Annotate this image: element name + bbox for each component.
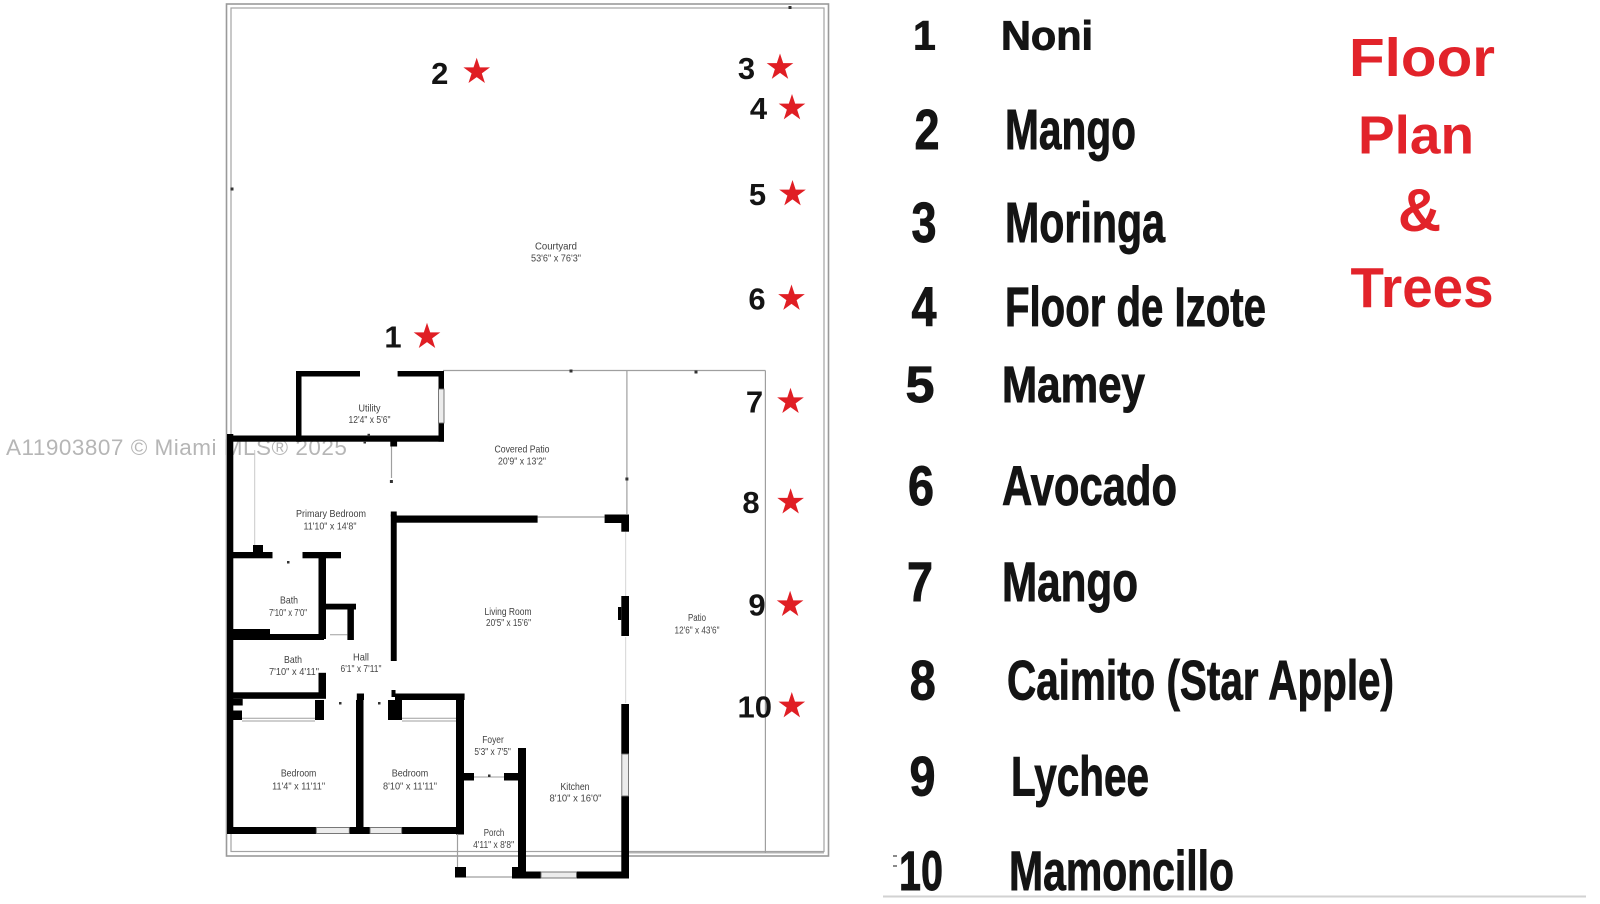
svg-text:&: & [1398,177,1441,244]
svg-text:11'10" x 14'8": 11'10" x 14'8" [304,522,357,533]
svg-text:Living Room: Living Room [485,606,532,618]
svg-text:1: 1 [913,13,936,59]
svg-text:8'10" x 11'11": 8'10" x 11'11" [383,782,437,793]
svg-text:Floor: Floor [1349,28,1495,88]
svg-text:6'1" x 7'11": 6'1" x 7'11" [341,664,382,675]
svg-text:Caimito (Star Apple): Caimito (Star Apple) [1007,649,1394,712]
svg-text:4'11" x 8'8": 4'11" x 8'8" [473,840,514,851]
svg-text:3: 3 [912,191,937,255]
svg-text:11'4" x 11'11": 11'4" x 11'11" [272,782,325,793]
svg-text:Mamoncillo: Mamoncillo [1009,839,1234,899]
svg-text:6: 6 [908,455,934,517]
svg-text:10: 10 [737,690,771,725]
svg-text:5: 5 [906,356,935,413]
svg-text:53'6" x 76'3": 53'6" x 76'3" [531,254,581,265]
svg-text:20'9" x 13'2": 20'9" x 13'2" [498,457,546,468]
svg-text:7'10" x 7'0": 7'10" x 7'0" [269,608,307,619]
svg-text:4: 4 [912,276,937,338]
svg-text:7'10" x 4'11": 7'10" x 4'11" [269,667,319,678]
svg-text:Bedroom: Bedroom [392,768,429,780]
svg-text:Utility: Utility [359,403,382,415]
svg-text:Courtyard: Courtyard [535,241,577,253]
svg-text:3: 3 [738,51,755,86]
svg-text:5: 5 [749,177,766,212]
svg-text:Foyer: Foyer [482,734,504,746]
svg-text:Moringa: Moringa [1005,191,1166,255]
svg-text:Lychee: Lychee [1011,745,1149,808]
svg-text:6: 6 [748,281,765,316]
svg-text:Noni: Noni [1001,13,1093,59]
svg-text:20'5" x 15'6": 20'5" x 15'6" [486,618,531,629]
svg-text:8'10" x 16'0": 8'10" x 16'0" [550,794,603,805]
svg-text:Primary Bedroom: Primary Bedroom [296,508,366,520]
svg-text:Hall: Hall [353,652,369,664]
svg-text:12'6" x 43'6": 12'6" x 43'6" [675,626,720,637]
svg-text:7: 7 [746,384,763,419]
svg-text:5'3" x 7'5": 5'3" x 7'5" [474,747,511,758]
svg-text:Mamey: Mamey [1002,356,1145,413]
svg-text:7: 7 [907,551,933,613]
svg-text:Floor de Izote: Floor de Izote [1005,276,1266,338]
svg-text:Patio: Patio [688,612,706,624]
svg-text:9: 9 [748,588,765,623]
svg-text:4: 4 [750,91,768,126]
svg-text:Mango: Mango [1002,551,1138,613]
svg-text:Kitchen: Kitchen [561,781,590,793]
svg-text:12'4" x 5'6": 12'4" x 5'6" [349,415,391,426]
svg-text:8: 8 [910,649,936,712]
svg-text:Bedroom: Bedroom [281,768,317,780]
svg-text:2: 2 [915,98,940,162]
svg-text:1: 1 [384,320,401,355]
svg-text:Bath: Bath [284,654,302,666]
svg-text:10: 10 [899,839,943,899]
svg-text:Covered Patio: Covered Patio [495,444,550,456]
svg-text:Bath: Bath [280,595,298,607]
svg-text:Trees: Trees [1351,257,1494,320]
svg-text:Porch: Porch [484,827,505,839]
svg-text:8: 8 [742,485,759,520]
svg-text:Mango: Mango [1005,98,1136,162]
svg-text:2: 2 [431,56,448,91]
svg-text:Avocado: Avocado [1002,455,1177,517]
svg-text:9: 9 [910,745,936,808]
svg-text:Plan: Plan [1358,106,1474,166]
